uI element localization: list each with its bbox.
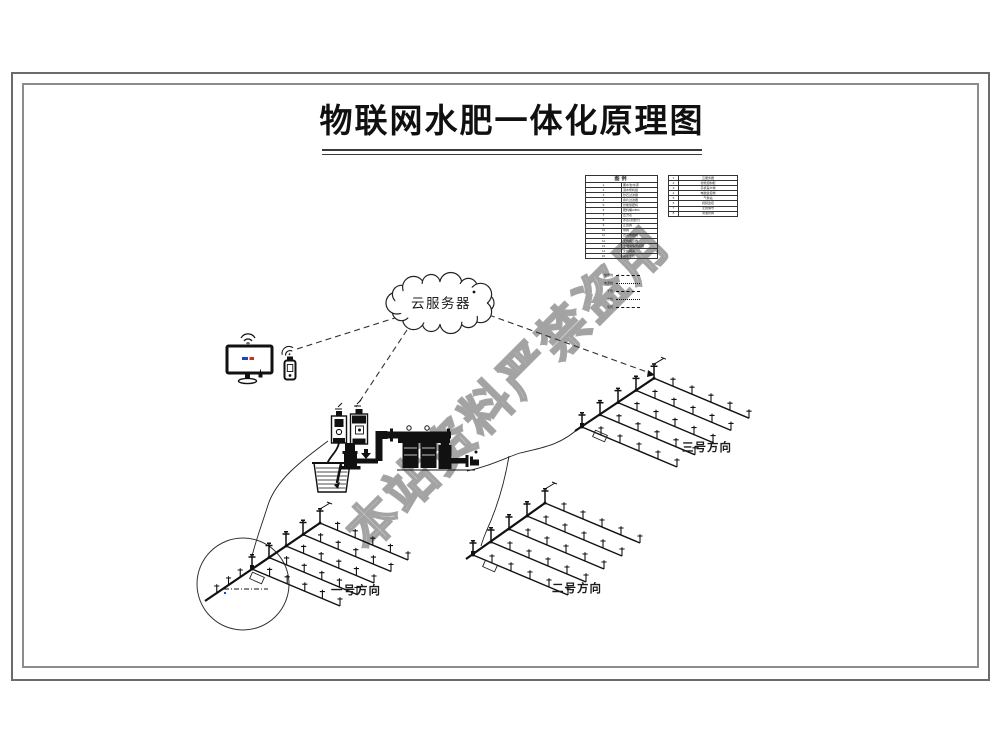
field-laterals xyxy=(473,503,640,595)
fertilizer-tank-b xyxy=(351,409,368,444)
line-type-sample: 毛管 xyxy=(597,304,640,312)
drawing-page: 本站资料严禁盗用 云服务器 xyxy=(0,0,1000,750)
detail-annotation-mark xyxy=(224,592,226,594)
page-title: 物联网水肥一体化原理图 xyxy=(312,94,712,142)
sprinkler-icons xyxy=(214,522,410,606)
detail-callout xyxy=(197,538,289,630)
legend-row-label: 输水干管 xyxy=(622,254,658,259)
pipeline-to-field3 xyxy=(467,427,580,471)
sprinkler-icons xyxy=(489,502,642,595)
detail-circle xyxy=(197,538,289,630)
wifi-icon xyxy=(241,334,255,346)
line-type-samples: 信号线电源线干管支管毛管 xyxy=(597,271,640,312)
field-mainline xyxy=(466,503,545,559)
field-inlet-valve xyxy=(250,565,254,569)
legend-row: 8滴灌管网 xyxy=(669,211,738,216)
field-3-label: 三号方向 xyxy=(682,440,732,454)
cloud-dot xyxy=(473,291,476,294)
filter-unit xyxy=(397,438,479,470)
screen-blue-bar xyxy=(242,357,248,360)
legend-row-label: 滴灌管网 xyxy=(679,211,738,216)
controller-antenna-icon xyxy=(654,357,666,364)
line-type-label: 干管 xyxy=(597,290,613,293)
dashed-link-cloud-to-field3 xyxy=(489,315,650,373)
line-type-stroke xyxy=(616,283,640,284)
legend-header: 图例 xyxy=(586,176,658,183)
cloud-server: 云服务器 xyxy=(386,273,494,334)
line-type-sample: 干管 xyxy=(597,287,640,295)
field-grid-1: 一号方向 xyxy=(205,502,411,606)
line-type-stroke xyxy=(616,307,640,308)
line-type-label: 毛管 xyxy=(597,306,613,309)
riser-valve-icons xyxy=(579,364,658,427)
line-type-sample: 信号线 xyxy=(597,271,640,279)
cloud-label: 云服务器 xyxy=(411,296,471,311)
dashed-link-cloud-to-station xyxy=(356,330,407,407)
pump-station xyxy=(312,400,479,492)
line-type-stroke xyxy=(616,291,640,292)
phone-icon xyxy=(280,344,296,379)
screen-red-bar xyxy=(250,357,255,360)
legend-row-number: 8 xyxy=(669,211,679,216)
line-type-sample: 电源线 xyxy=(597,279,640,287)
tank-antennas xyxy=(335,400,361,409)
field-tag-marker xyxy=(483,560,498,572)
field-inlet-valve xyxy=(580,423,584,427)
pipeline-to-field1 xyxy=(252,441,328,556)
wifi-icon xyxy=(280,344,296,358)
fertilizer-tank-a xyxy=(332,411,347,443)
legend-table-left: 图例 1蓄水池/水源2潜水泵机组3砂石过滤器4叠片过滤器5智能施肥机6肥料桶A/… xyxy=(585,175,658,259)
field-mainline xyxy=(575,378,654,431)
legend-table-right: 1云服务器2智能控制柜3手机客户端4电脑监控端5气象站6视频监控7无线信号8滴灌… xyxy=(668,175,738,217)
plug-icon xyxy=(259,372,263,378)
legend-row: 15输水干管 xyxy=(586,254,658,259)
legend-row-number: 15 xyxy=(586,254,622,259)
field-inlet-valve xyxy=(471,551,475,555)
field-grid-3: 三号方向 xyxy=(575,357,752,467)
field-grid-2: 二号方向 xyxy=(466,482,643,595)
field-1-label: 一号方向 xyxy=(331,583,381,597)
line-type-stroke xyxy=(616,275,640,276)
line-type-label: 信号线 xyxy=(597,274,613,277)
line-type-stroke xyxy=(616,299,640,300)
controller-antenna-icon xyxy=(320,502,332,509)
line-type-sample: 支管 xyxy=(597,296,640,304)
suction-tube xyxy=(327,443,339,464)
dashed-link-cloud-to-pc xyxy=(297,317,398,349)
field-2-label: 二号方向 xyxy=(552,581,602,595)
monitor-icon xyxy=(227,334,272,384)
line-type-label: 电源线 xyxy=(597,282,613,285)
title-underline xyxy=(322,149,702,155)
controller-antenna-icon xyxy=(545,482,557,489)
line-type-label: 支管 xyxy=(597,298,613,301)
field-laterals xyxy=(252,523,408,606)
